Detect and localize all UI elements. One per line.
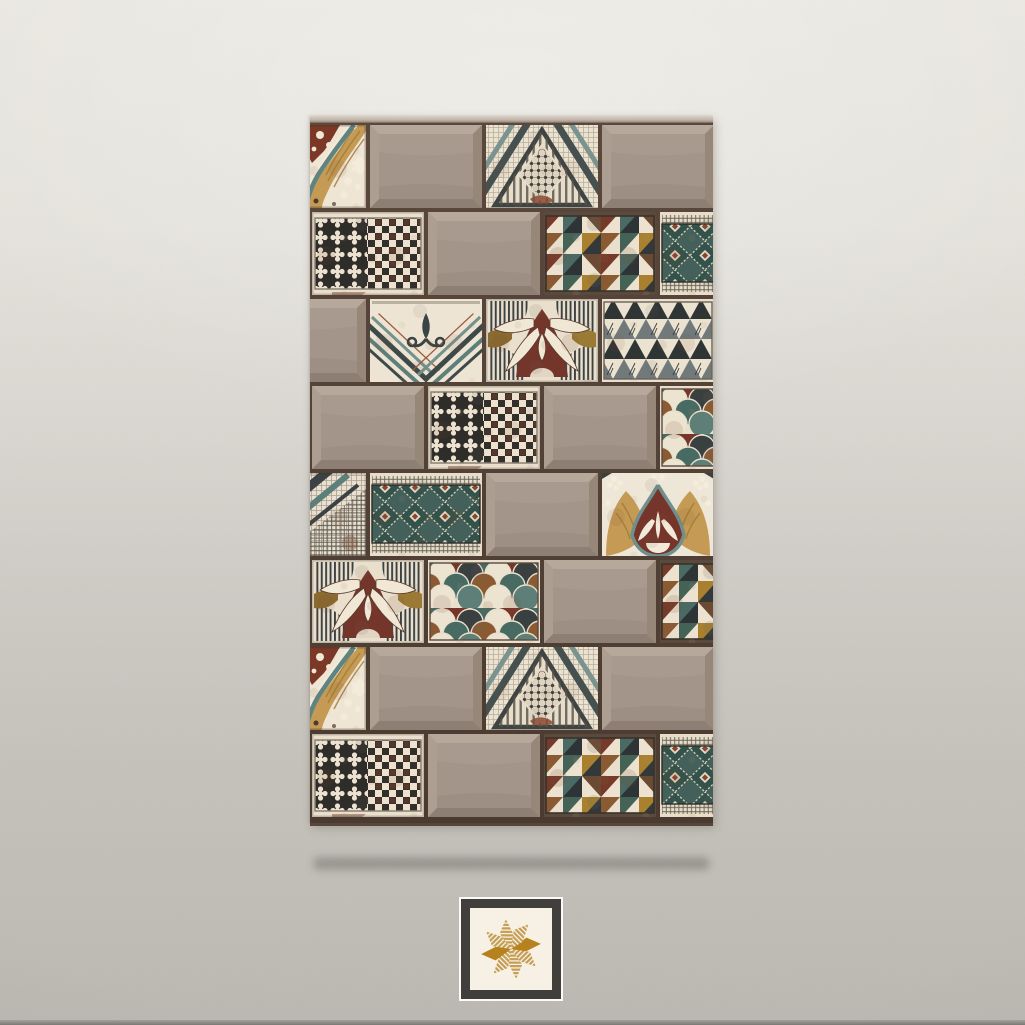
floor-baseboard-strip: [0, 1020, 1025, 1025]
chevron-tile: [486, 125, 598, 208]
plain-tile: [602, 647, 713, 730]
plain-tile: [544, 560, 656, 643]
brand-logo-inner: [470, 908, 552, 990]
palmette-tile: [486, 299, 598, 382]
quatrefoil-checker-tile: [312, 212, 424, 295]
plain-tile: [370, 647, 482, 730]
plain-tile: [602, 125, 713, 208]
brand-logo-frame: [459, 897, 563, 1001]
tile-panel: [310, 116, 713, 823]
panel-shadow: [313, 857, 710, 870]
scales-tile: [660, 386, 713, 469]
plain-tile: [486, 473, 598, 556]
chevron-tile: [486, 647, 598, 730]
diag-hatch-tile: [310, 473, 366, 556]
teal-ikat-tile: [660, 212, 713, 295]
tri-bw-tile: [602, 299, 713, 382]
plain-tile: [312, 386, 424, 469]
plain-tile: [310, 299, 366, 382]
star-logo-icon: [478, 916, 544, 982]
plain-tile: [370, 125, 482, 208]
plain-tile: [428, 212, 540, 295]
tri-checks-tile: [544, 212, 656, 295]
fleur-arrow-tile: [370, 299, 482, 382]
arch-ornate-tile: [602, 473, 713, 556]
tri-checks-tile: [660, 560, 713, 643]
panel-top-edge: [310, 116, 713, 123]
plain-tile: [428, 734, 540, 817]
tri-checks-tile: [544, 734, 656, 817]
scales-tile: [428, 560, 540, 643]
teal-ikat-tile: [370, 473, 482, 556]
tile-grid: [310, 123, 713, 823]
product-photo: { "meta": { "description": "Product phot…: [0, 0, 1025, 1025]
agate-tile: [310, 125, 366, 208]
palmette-tile: [312, 560, 424, 643]
plain-tile: [544, 386, 656, 469]
panel-bottom-edge: [310, 823, 713, 826]
agate-tile: [310, 647, 366, 730]
quatrefoil-checker-tile: [428, 386, 540, 469]
teal-ikat-tile: [660, 734, 713, 817]
quatrefoil-checker-tile: [312, 734, 424, 817]
